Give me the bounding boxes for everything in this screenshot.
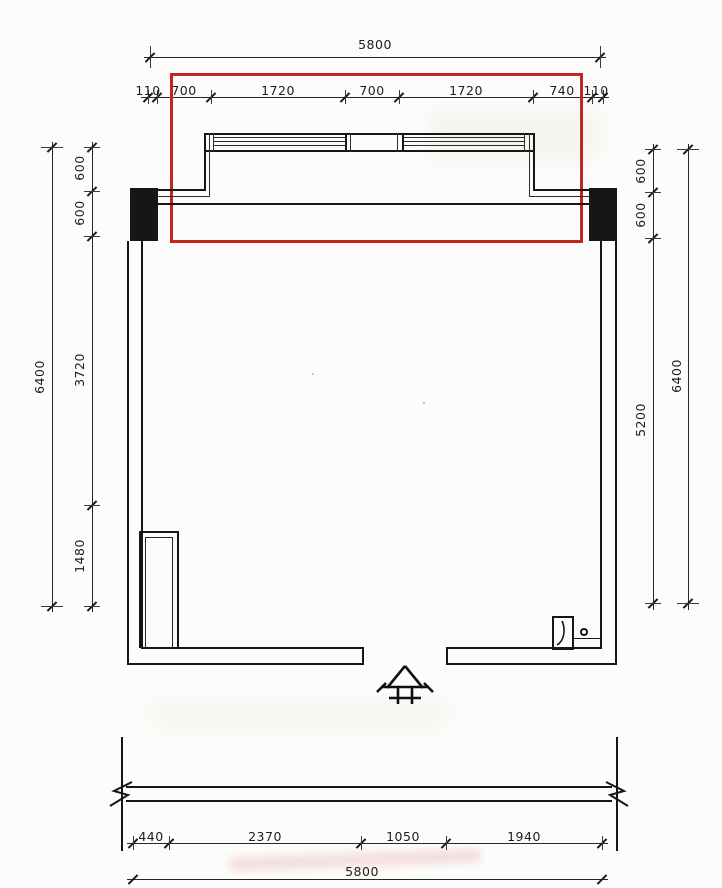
window-mullion xyxy=(350,133,351,152)
floor-plan-sheet: 5800 110 700 1720 700 1720 740 110 6400 xyxy=(0,0,722,888)
bay-side-wall xyxy=(204,133,206,191)
dimension-line xyxy=(92,142,93,612)
window-glazing-line xyxy=(213,137,345,138)
dimension-line xyxy=(127,879,608,880)
door-jamb xyxy=(362,647,364,665)
extension-line xyxy=(84,606,100,607)
window-frame-line xyxy=(204,133,535,135)
window-glazing-line xyxy=(213,145,345,146)
fixture-knob-circle xyxy=(580,628,588,636)
extension-line xyxy=(446,836,447,850)
dim-label: 110 xyxy=(130,84,166,97)
dim-label: 600 xyxy=(634,190,648,240)
bay-side-wall xyxy=(209,133,210,196)
column-right xyxy=(589,188,617,241)
dim-label-bottom-overall: 5800 xyxy=(332,865,392,878)
bay-sill-line xyxy=(158,203,590,205)
extension-line xyxy=(169,836,170,850)
extension-line xyxy=(150,46,151,68)
dimension-line xyxy=(653,144,654,610)
window-glazing-line xyxy=(403,141,524,142)
wall-line-left-outer xyxy=(127,241,129,665)
break-symbol-left xyxy=(102,776,134,810)
window-glazing-line xyxy=(403,145,524,146)
dim-label-left-overall: 6400 xyxy=(33,352,47,402)
fixture-curve xyxy=(555,619,571,647)
scan-dot xyxy=(312,373,314,375)
pilaster-outline-inner xyxy=(145,537,173,648)
bay-step-line xyxy=(534,189,590,191)
break-symbol-right xyxy=(604,776,636,810)
window-mullion xyxy=(397,133,398,152)
scan-dot xyxy=(423,402,425,404)
dimension-line xyxy=(52,142,53,612)
window-mullion xyxy=(213,133,214,152)
extension-line xyxy=(84,505,100,506)
dim-label: 1050 xyxy=(381,830,425,843)
red-highlight-box xyxy=(170,73,583,243)
extension-line xyxy=(600,46,601,68)
wall-line-bottom-outer xyxy=(446,663,617,665)
wall-line-right-outer xyxy=(615,241,617,665)
section-line-top xyxy=(126,786,612,788)
dimension-line xyxy=(144,57,606,58)
dim-label: 5200 xyxy=(634,395,648,445)
fixture-bar xyxy=(572,638,602,649)
dim-label: 2370 xyxy=(243,830,287,843)
window-glazing-line xyxy=(403,137,524,138)
extension-line xyxy=(41,147,63,148)
bay-side-wall xyxy=(533,133,535,191)
extension-line xyxy=(602,836,603,850)
wall-line-right-inner xyxy=(600,241,602,649)
dim-label-right-overall: 6400 xyxy=(670,351,684,401)
bay-step-line xyxy=(158,189,206,191)
dim-label: 600 xyxy=(73,188,87,238)
window-mullion xyxy=(524,133,525,152)
bay-step-line xyxy=(529,196,590,197)
extension-line xyxy=(41,606,63,607)
window-mullion xyxy=(345,133,347,152)
dim-label: 440 xyxy=(133,830,169,843)
dim-label: 600 xyxy=(634,146,648,196)
window-mullion xyxy=(402,133,404,152)
entry-arrow-icon xyxy=(372,661,440,707)
dim-label-top-overall: 5800 xyxy=(345,38,405,51)
dim-label: 3720 xyxy=(73,345,87,395)
extension-line xyxy=(645,603,661,604)
dim-label: 110 xyxy=(578,84,614,97)
bay-step-line xyxy=(158,196,210,197)
door-jamb xyxy=(446,647,448,665)
bay-side-wall xyxy=(529,133,530,196)
dim-label: 600 xyxy=(73,143,87,193)
extension-line xyxy=(677,603,699,604)
column-left xyxy=(130,188,158,241)
window-frame-line xyxy=(204,150,535,152)
section-line-bottom xyxy=(126,800,612,802)
dimension-line xyxy=(688,144,689,610)
wall-line-bottom-outer xyxy=(127,663,364,665)
window-glazing-line xyxy=(213,141,345,142)
dim-label: 1480 xyxy=(73,531,87,581)
dim-label: 1940 xyxy=(502,830,546,843)
extension-line xyxy=(361,836,362,850)
extension-line xyxy=(677,149,699,150)
